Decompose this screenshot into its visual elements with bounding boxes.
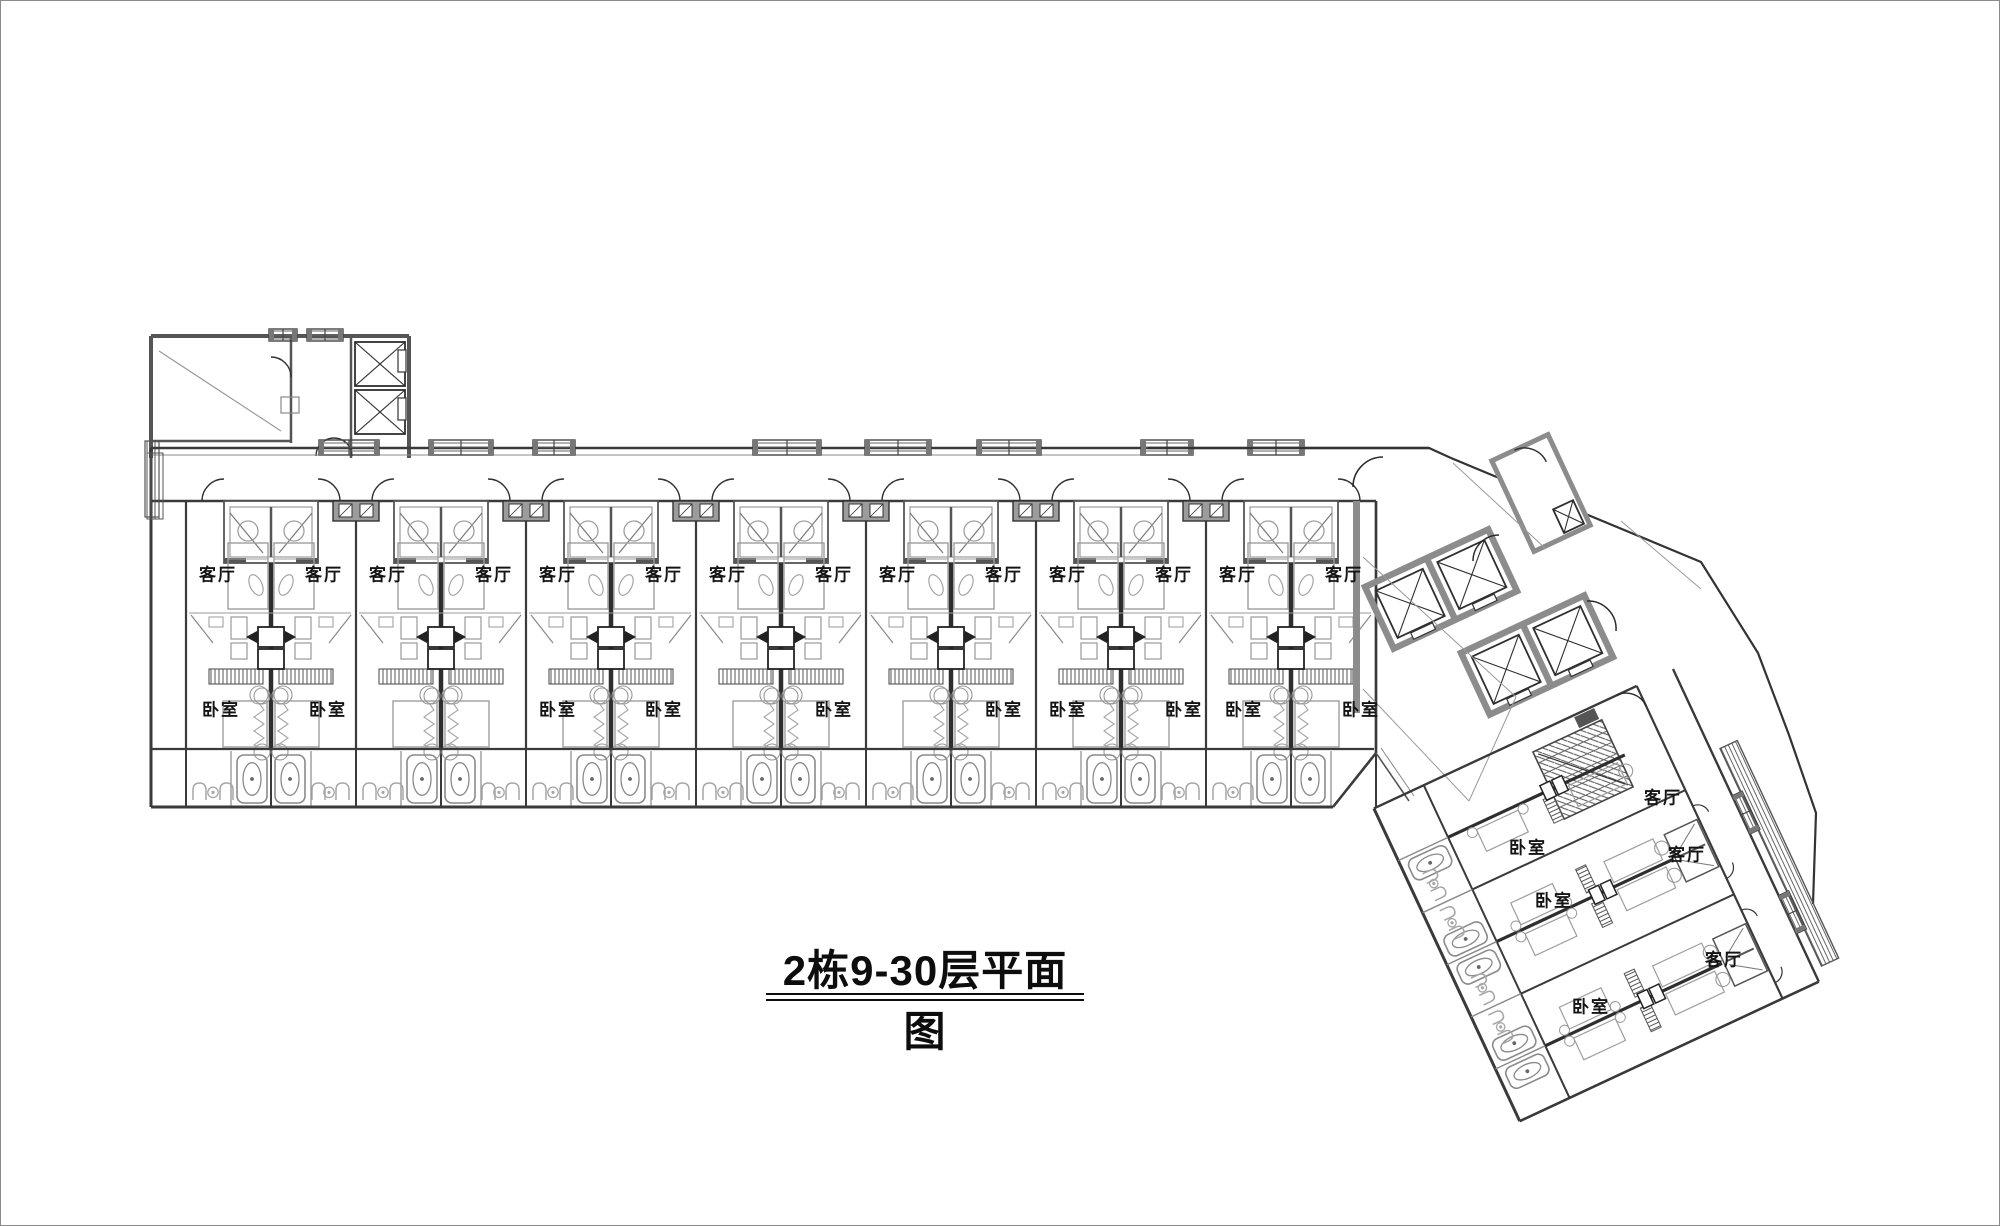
wardrobe-icon bbox=[619, 669, 673, 684]
door-arc-icon bbox=[1052, 479, 1074, 501]
wardrobe-icon bbox=[549, 669, 603, 684]
w bbox=[488, 440, 493, 455]
leaf-icon bbox=[756, 572, 776, 597]
w bbox=[269, 329, 274, 341]
bedroom-label: 卧室 bbox=[1509, 834, 1547, 859]
bedroom-label: 卧室 bbox=[1165, 696, 1203, 721]
wardrobe-icon bbox=[279, 669, 333, 684]
fixture bbox=[1169, 617, 1183, 627]
toilet-icon bbox=[873, 783, 886, 800]
bed-icon bbox=[445, 701, 489, 747]
kitchen-door bbox=[1108, 649, 1134, 669]
wardrobe-icon bbox=[379, 669, 433, 684]
living-room-label: 客厅 bbox=[369, 561, 407, 586]
elevator-door bbox=[398, 398, 406, 420]
bathtub-drain bbox=[459, 778, 462, 781]
living-room-label: 客厅 bbox=[1644, 784, 1682, 809]
door-arc-icon bbox=[1338, 479, 1360, 501]
fixture bbox=[571, 617, 587, 639]
bed-icon bbox=[1574, 1019, 1626, 1060]
door-arrow bbox=[247, 631, 258, 643]
wardrobe-icon bbox=[959, 669, 1013, 684]
wardrobe-icon bbox=[1129, 669, 1183, 684]
d bbox=[382, 791, 384, 793]
leaf-icon bbox=[446, 572, 466, 597]
bed-icon bbox=[1653, 943, 1712, 987]
w bbox=[533, 440, 538, 455]
bathtub-drain bbox=[761, 778, 764, 781]
living-room-label: 客厅 bbox=[1705, 946, 1743, 971]
door-arc-icon bbox=[202, 479, 224, 501]
floor-plan-canvas: 2栋9-30层平面图 客厅客厅客厅客厅客厅客厅客厅客厅客厅客厅客厅客厅客厅客厅客… bbox=[0, 0, 2000, 1226]
bath-wall bbox=[1495, 1046, 1545, 1069]
door-leaf bbox=[1179, 615, 1201, 643]
door-arc-icon bbox=[372, 479, 394, 501]
kitchen-door bbox=[428, 649, 454, 669]
d bbox=[668, 791, 670, 793]
lobby-room bbox=[1492, 435, 1590, 552]
bedroom-label: 卧室 bbox=[1572, 993, 1610, 1018]
fixture bbox=[1315, 643, 1331, 659]
door-arc-icon bbox=[828, 479, 850, 501]
d bbox=[1499, 1026, 1502, 1029]
kitchen-door bbox=[258, 627, 284, 647]
door-arrow bbox=[757, 631, 768, 643]
living-room-label: 客厅 bbox=[1325, 561, 1363, 586]
d bbox=[892, 791, 894, 793]
door-arrow bbox=[964, 631, 975, 643]
door-arrow bbox=[1267, 631, 1278, 643]
fixture bbox=[911, 617, 927, 639]
floor-line bbox=[1621, 521, 1701, 589]
fixture bbox=[1059, 617, 1073, 627]
d bbox=[1008, 791, 1010, 793]
elevator-pair bbox=[1365, 529, 1517, 648]
d bbox=[1178, 791, 1180, 793]
fixture bbox=[465, 617, 481, 639]
living-room-label: 客厅 bbox=[199, 561, 237, 586]
door-arrow bbox=[284, 631, 295, 643]
fixture bbox=[741, 617, 757, 639]
bathtub-drain bbox=[251, 778, 254, 781]
bedroom-label: 卧室 bbox=[645, 696, 683, 721]
blanket-icon bbox=[1274, 703, 1284, 747]
fixture bbox=[1229, 617, 1243, 627]
blanket-icon bbox=[618, 703, 628, 747]
bedroom-label: 卧室 bbox=[309, 696, 347, 721]
toilet-icon bbox=[1440, 905, 1457, 920]
w bbox=[977, 440, 982, 455]
bedroom-label: 卧室 bbox=[1049, 696, 1087, 721]
fixture bbox=[805, 643, 821, 659]
kitchen-door bbox=[1108, 627, 1134, 647]
d bbox=[328, 791, 330, 793]
w bbox=[816, 440, 821, 455]
toilet-icon bbox=[846, 783, 859, 800]
fixture bbox=[999, 617, 1013, 627]
leaf-icon bbox=[786, 572, 806, 597]
kitchen-door bbox=[598, 627, 624, 647]
door-arc-icon bbox=[1168, 479, 1190, 501]
bathtub-drain bbox=[289, 778, 292, 781]
bath-wall bbox=[1471, 994, 1521, 1017]
w bbox=[319, 440, 324, 455]
fixture bbox=[401, 617, 417, 639]
fixture bbox=[805, 617, 821, 639]
toilet-icon bbox=[482, 783, 495, 800]
toilet-icon bbox=[1043, 783, 1056, 800]
kitchen-door bbox=[938, 649, 964, 669]
bathtub-drain bbox=[1101, 778, 1104, 781]
living-room-label: 客厅 bbox=[815, 561, 853, 586]
living-room-label: 客厅 bbox=[1049, 561, 1087, 586]
living-room-label: 客厅 bbox=[305, 561, 343, 586]
wardrobe-icon bbox=[789, 669, 843, 684]
door-arrow bbox=[794, 631, 805, 643]
toilet-icon bbox=[992, 783, 1005, 800]
door-leaf bbox=[191, 615, 213, 643]
title-underline bbox=[766, 993, 1084, 995]
kitchen-door bbox=[1278, 649, 1304, 669]
elevator-door bbox=[398, 350, 406, 372]
d bbox=[498, 791, 500, 793]
door-arrow bbox=[927, 631, 938, 643]
blanket-icon bbox=[1298, 703, 1308, 747]
leaf-icon bbox=[926, 572, 946, 597]
blanket-icon bbox=[958, 703, 968, 747]
fixture bbox=[741, 643, 757, 659]
d bbox=[1451, 921, 1454, 924]
fixture bbox=[659, 617, 673, 627]
fixture bbox=[571, 643, 587, 659]
living-room-label: 客厅 bbox=[645, 561, 683, 586]
door-arc-icon bbox=[542, 479, 564, 501]
w bbox=[926, 440, 931, 455]
blanket-icon bbox=[448, 703, 458, 747]
leaf-icon bbox=[1296, 572, 1316, 597]
door-arc-icon bbox=[271, 357, 291, 377]
living-room-label: 客厅 bbox=[539, 561, 577, 586]
fixture bbox=[1251, 643, 1267, 659]
bathtub-drain bbox=[1271, 778, 1274, 781]
w bbox=[1141, 440, 1146, 455]
kitchen-door bbox=[768, 649, 794, 669]
w bbox=[338, 329, 343, 341]
leaf-icon bbox=[616, 572, 636, 597]
blanket-icon bbox=[254, 703, 264, 747]
bathtub-drain bbox=[591, 778, 594, 781]
bath-wall bbox=[1423, 889, 1473, 912]
w bbox=[374, 440, 379, 455]
bed-icon bbox=[1604, 839, 1663, 883]
door-arc-icon bbox=[1617, 686, 1646, 715]
leaf-icon bbox=[416, 572, 436, 597]
fixture bbox=[489, 617, 503, 627]
living-room-label: 客厅 bbox=[1668, 841, 1706, 866]
blanket-icon bbox=[1128, 703, 1138, 747]
blanket-icon bbox=[788, 703, 798, 747]
bedroom-label: 卧室 bbox=[1225, 696, 1263, 721]
toilet-icon bbox=[703, 783, 716, 800]
wardrobe-icon bbox=[719, 669, 773, 684]
d bbox=[1232, 791, 1234, 793]
toilet-icon bbox=[1186, 783, 1199, 800]
fixture bbox=[635, 617, 651, 639]
fixture bbox=[1081, 643, 1097, 659]
w bbox=[1036, 440, 1041, 455]
toilet-icon bbox=[822, 783, 835, 800]
leaf-icon bbox=[246, 572, 266, 597]
angled-wing bbox=[1374, 657, 1844, 1121]
fixture bbox=[465, 643, 481, 659]
kitchen-door bbox=[768, 627, 794, 647]
bathtub-drain bbox=[931, 778, 934, 781]
door-leaf bbox=[1041, 615, 1063, 643]
fixture bbox=[1315, 617, 1331, 639]
door-arc-icon bbox=[488, 479, 510, 501]
door-leaf bbox=[839, 615, 861, 643]
kitchen-door bbox=[258, 649, 284, 669]
unit-pair bbox=[1436, 801, 1737, 998]
d bbox=[552, 791, 554, 793]
blanket-icon bbox=[764, 703, 774, 747]
fixture bbox=[719, 617, 733, 627]
blanket-icon bbox=[424, 703, 434, 747]
d bbox=[722, 791, 724, 793]
bathtub-drain bbox=[799, 778, 802, 781]
leaf-icon bbox=[1266, 572, 1286, 597]
bed-icon bbox=[1617, 867, 1676, 911]
toilet-icon bbox=[1016, 783, 1029, 800]
w bbox=[292, 329, 297, 341]
fixture bbox=[1145, 617, 1161, 639]
w bbox=[307, 329, 312, 341]
wardrobe-icon bbox=[209, 669, 263, 684]
door-arc-icon bbox=[318, 479, 340, 501]
wardrobe-icon bbox=[449, 669, 503, 684]
fixture bbox=[295, 617, 311, 639]
bedroom-label: 卧室 bbox=[985, 696, 1023, 721]
toilet-icon bbox=[1213, 783, 1226, 800]
west-core bbox=[145, 329, 409, 517]
door-arc-icon bbox=[1222, 479, 1244, 501]
fixture bbox=[209, 617, 223, 627]
kitchen-door bbox=[598, 649, 624, 669]
door-arrow bbox=[1134, 631, 1145, 643]
bathtub-drain bbox=[1309, 778, 1312, 781]
toilet-icon bbox=[336, 783, 349, 800]
door-arrow bbox=[1304, 631, 1315, 643]
w bbox=[570, 440, 575, 455]
fixture bbox=[975, 617, 991, 639]
toilet-icon bbox=[1488, 1009, 1505, 1024]
wardrobe-icon bbox=[889, 669, 943, 684]
door-leaf bbox=[329, 615, 351, 643]
door-arc-icon bbox=[658, 479, 680, 501]
bed-icon bbox=[1125, 701, 1169, 747]
ramp-line bbox=[159, 351, 281, 431]
w bbox=[865, 440, 870, 455]
bathtub-drain bbox=[969, 778, 972, 781]
bedroom-label: 卧室 bbox=[1342, 696, 1380, 721]
d bbox=[1432, 882, 1435, 885]
fixture bbox=[635, 643, 651, 659]
kitchen-door bbox=[428, 627, 454, 647]
blanket-icon bbox=[278, 703, 288, 747]
fixture bbox=[379, 617, 393, 627]
leaf-icon bbox=[1096, 572, 1116, 597]
kitchen-door bbox=[938, 627, 964, 647]
blanket-icon bbox=[934, 703, 944, 747]
door-arc-icon bbox=[998, 479, 1020, 501]
door-leaf bbox=[701, 615, 723, 643]
leaf-icon bbox=[276, 572, 296, 597]
d bbox=[1481, 986, 1484, 989]
bathtub-drain bbox=[421, 778, 424, 781]
door-arrow bbox=[454, 631, 465, 643]
d bbox=[212, 791, 214, 793]
toilet-icon bbox=[652, 783, 665, 800]
bedroom-label: 卧室 bbox=[202, 696, 240, 721]
fixture bbox=[829, 617, 843, 627]
toilet-icon bbox=[193, 783, 206, 800]
door-arc-icon bbox=[1353, 457, 1383, 487]
toilet-icon bbox=[676, 783, 689, 800]
fixture bbox=[231, 643, 247, 659]
toilet-icon bbox=[506, 783, 519, 800]
living-room-label: 客厅 bbox=[1155, 561, 1193, 586]
bathtub-drain bbox=[1428, 861, 1432, 865]
title-underline bbox=[766, 999, 1084, 1001]
leaf-icon bbox=[1126, 572, 1146, 597]
bed-icon bbox=[1295, 701, 1339, 747]
living-room-label: 客厅 bbox=[475, 561, 513, 586]
bathtub-drain bbox=[1512, 1041, 1516, 1045]
door-leaf bbox=[669, 615, 691, 643]
fixture bbox=[911, 643, 927, 659]
fixture bbox=[231, 617, 247, 639]
room-walls bbox=[1492, 435, 1590, 552]
door-arrow bbox=[417, 631, 428, 643]
toilet-icon bbox=[533, 783, 546, 800]
door-arc-icon bbox=[712, 479, 734, 501]
living-room-label: 客厅 bbox=[879, 561, 917, 586]
fixture bbox=[401, 643, 417, 659]
bedroom-label: 卧室 bbox=[539, 696, 577, 721]
bed-icon bbox=[1525, 914, 1577, 955]
kitchen-door bbox=[1278, 627, 1304, 647]
leaf-icon bbox=[586, 572, 606, 597]
door-leaf bbox=[499, 615, 521, 643]
bathtub-drain bbox=[1477, 965, 1481, 969]
plan-title: 2栋9-30层平面图 bbox=[766, 937, 1084, 1059]
w bbox=[753, 440, 758, 455]
door-arc-icon bbox=[882, 479, 904, 501]
chamfer-wall bbox=[1333, 753, 1376, 807]
door-arrow bbox=[1097, 631, 1108, 643]
living-room-label: 客厅 bbox=[709, 561, 747, 586]
door-leaf bbox=[1211, 615, 1233, 643]
unit-pair bbox=[1485, 905, 1786, 1102]
fixture bbox=[1081, 617, 1097, 639]
fixture bbox=[1145, 643, 1161, 659]
wardrobe-icon bbox=[1059, 669, 1113, 684]
door-arrow bbox=[587, 631, 598, 643]
blanket-icon bbox=[594, 703, 604, 747]
wardrobe-icon bbox=[1229, 669, 1283, 684]
bathtub-drain bbox=[1464, 937, 1468, 941]
elevator-pair bbox=[1461, 595, 1613, 714]
living-room-label: 客厅 bbox=[985, 561, 1023, 586]
w bbox=[429, 440, 434, 455]
east-poche-wall bbox=[1353, 501, 1360, 713]
shaft-hatch bbox=[147, 453, 163, 519]
fixture bbox=[1339, 617, 1353, 627]
d bbox=[838, 791, 840, 793]
door-arrow bbox=[624, 631, 635, 643]
leaf-icon bbox=[956, 572, 976, 597]
bathtub-drain bbox=[629, 778, 632, 781]
link-wall bbox=[1381, 748, 1414, 796]
fixture bbox=[295, 643, 311, 659]
fixture bbox=[1251, 617, 1267, 639]
fixture bbox=[319, 617, 333, 627]
fixture bbox=[975, 643, 991, 659]
bath-wall bbox=[1447, 942, 1497, 965]
door-leaf bbox=[531, 615, 553, 643]
bathtub-drain bbox=[1525, 1069, 1529, 1073]
blanket-icon bbox=[1104, 703, 1114, 747]
d bbox=[1062, 791, 1064, 793]
bed-icon bbox=[1666, 971, 1725, 1015]
toilet-icon bbox=[312, 783, 325, 800]
fixture bbox=[549, 617, 563, 627]
bath-wall bbox=[1398, 837, 1448, 860]
bedroom-label: 卧室 bbox=[1535, 887, 1573, 912]
wardrobe-icon bbox=[1299, 669, 1353, 684]
bathtub-drain bbox=[1139, 778, 1142, 781]
bedroom-label: 卧室 bbox=[815, 696, 853, 721]
toilet-icon bbox=[1162, 783, 1175, 800]
door-leaf bbox=[361, 615, 383, 643]
living-room-label: 客厅 bbox=[1219, 561, 1257, 586]
fixture bbox=[889, 617, 903, 627]
unit-row bbox=[151, 479, 1376, 807]
toilet-icon bbox=[363, 783, 376, 800]
door-leaf bbox=[871, 615, 893, 643]
door-leaf bbox=[1009, 615, 1031, 643]
